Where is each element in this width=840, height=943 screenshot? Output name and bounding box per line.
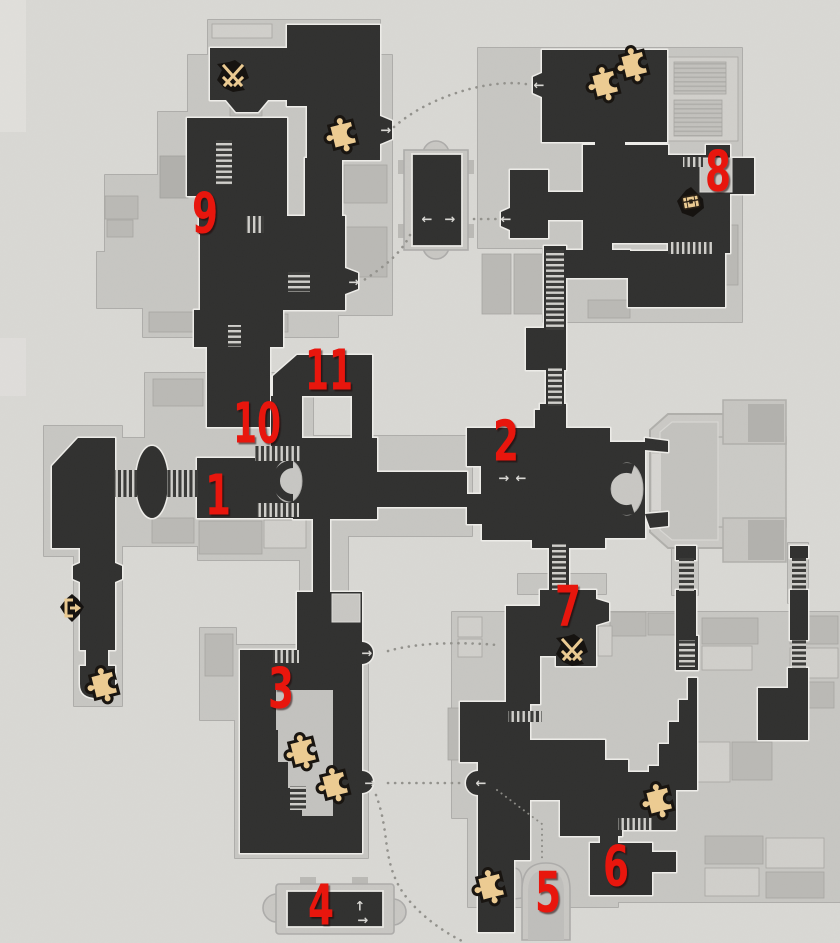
map-marker-5: 5 — [535, 861, 561, 926]
transfer-arrow: → — [381, 124, 392, 139]
map-marker-7: 7 — [555, 575, 581, 640]
transfer-arrow: ← — [476, 777, 487, 792]
transfer-arrow: → — [358, 914, 369, 929]
map-marker-1: 1 — [205, 464, 231, 529]
transfer-arrow: → — [445, 213, 456, 228]
transfer-arrow: ← — [501, 213, 512, 228]
map-marker-6: 6 — [603, 835, 629, 900]
map-marker-4: 4 — [308, 874, 334, 939]
game-map-svg: →→←←→←←→→→←↑→ 1234567891011 — [0, 0, 840, 943]
transfer-arrow: ↑ — [355, 900, 366, 915]
map-marker-3: 3 — [268, 657, 294, 722]
transfer-arrow: ← — [534, 79, 545, 94]
map-marker-11: 11 — [305, 339, 353, 404]
map-marker-10: 10 — [233, 392, 281, 457]
map-marker-8: 8 — [705, 140, 731, 205]
transfer-arrow: → — [349, 276, 360, 291]
transfer-arrow: ← — [422, 213, 433, 228]
map-marker-2: 2 — [493, 410, 519, 475]
transfer-arrow: → — [365, 777, 376, 792]
transfer-arrow: → — [362, 647, 373, 662]
map-marker-9: 9 — [192, 182, 218, 247]
game-map-viewport[interactable]: →→←←→←←→→→←↑→ 1234567891011 — [0, 0, 840, 943]
